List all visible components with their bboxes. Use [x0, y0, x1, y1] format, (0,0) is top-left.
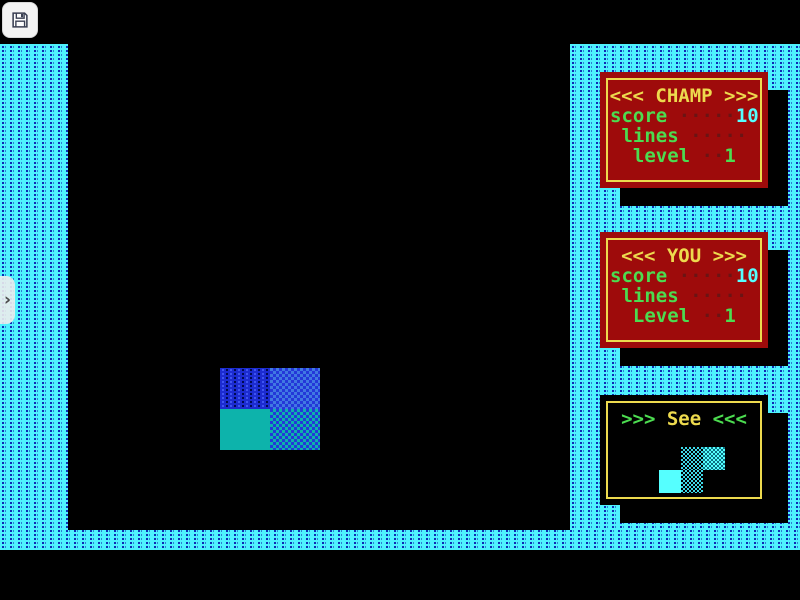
- level-dots: ··: [690, 145, 724, 167]
- falling-piece: [220, 368, 320, 450]
- tetromino-block: [220, 368, 270, 409]
- you-level-row: Level ··1: [608, 306, 760, 326]
- score-value: 10: [736, 265, 759, 287]
- score-value: 10: [736, 105, 759, 127]
- champ-level-row: level ··1: [608, 146, 760, 166]
- next-piece-panel: >>> See <<<: [600, 395, 768, 505]
- you-panel: <<< YOU >>> score ·····10 lines ····· Le…: [600, 232, 768, 348]
- game-screen: <<< CHAMP >>> score ·····10 lines ····· …: [0, 0, 800, 600]
- tetromino-block: [270, 409, 320, 450]
- next-piece-preview: [600, 395, 768, 505]
- champ-panel: <<< CHAMP >>> score ·····10 lines ····· …: [600, 72, 768, 188]
- playfield: [68, 44, 570, 530]
- champ-title: <<< CHAMP >>>: [608, 86, 760, 106]
- you-panel-frame: <<< YOU >>> score ·····10 lines ····· Le…: [606, 238, 762, 342]
- lines-dots: ·····: [679, 125, 748, 147]
- champ-lines-row: lines ·····: [608, 126, 760, 146]
- level-value: 1: [724, 145, 735, 167]
- score-label: score: [610, 265, 667, 287]
- lines-dots: ·····: [679, 285, 748, 307]
- level-value: 1: [724, 305, 735, 327]
- preview-block: [659, 470, 681, 493]
- champ-panel-frame: <<< CHAMP >>> score ·····10 lines ····· …: [606, 78, 762, 182]
- level-label: level: [610, 145, 690, 167]
- border-bottom: [0, 530, 800, 550]
- lines-label: lines: [610, 285, 679, 307]
- score-dots: ·····: [667, 105, 736, 127]
- champ-score-row: score ·····10: [608, 106, 760, 126]
- tetromino-block: [220, 409, 270, 450]
- you-score-row: score ·····10: [608, 266, 760, 286]
- level-label: Level: [610, 305, 690, 327]
- drawer-handle[interactable]: ›: [0, 276, 15, 324]
- preview-block: [681, 470, 703, 493]
- lines-label: lines: [610, 125, 679, 147]
- you-title: <<< YOU >>>: [608, 246, 760, 266]
- save-button[interactable]: [2, 2, 38, 38]
- score-dots: ·····: [667, 265, 736, 287]
- save-icon: [9, 9, 31, 31]
- tetromino-block: [270, 368, 320, 409]
- chevron-right-icon: ›: [4, 290, 11, 310]
- preview-block: [681, 447, 703, 470]
- preview-block: [703, 447, 725, 470]
- level-dots: ··: [690, 305, 724, 327]
- you-lines-row: lines ·····: [608, 286, 760, 306]
- score-label: score: [610, 105, 667, 127]
